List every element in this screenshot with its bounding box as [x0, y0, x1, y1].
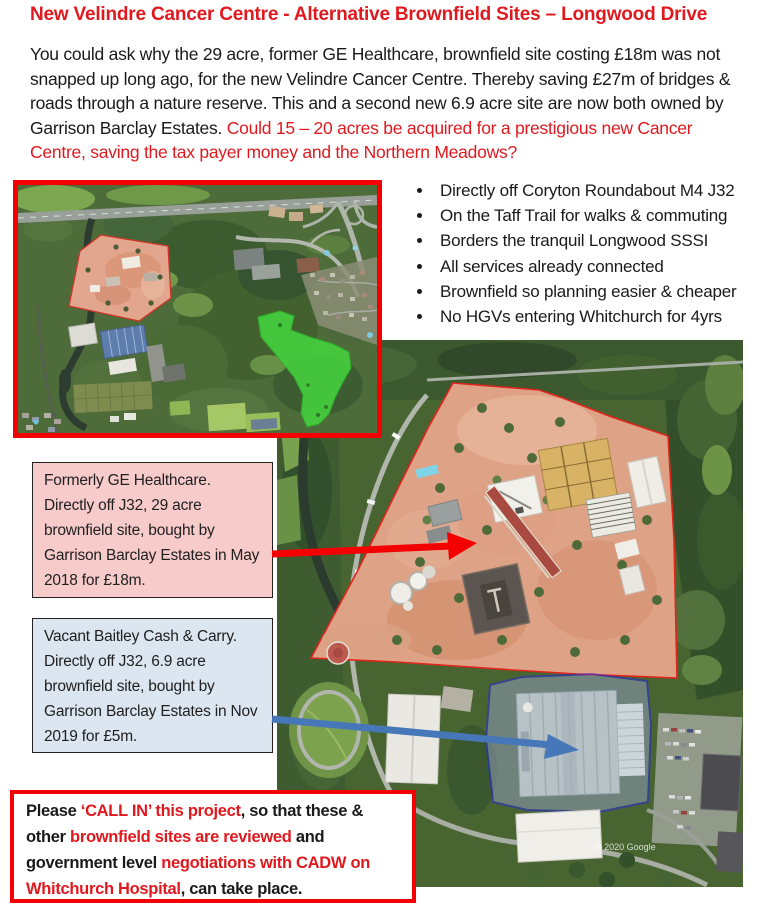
callout-baitley-text: Vacant Baitley Cash & Carry. Directly of…	[44, 628, 257, 745]
google-watermark: © 2020 Google	[595, 842, 656, 852]
overview-aerial-art	[18, 185, 377, 433]
list-item: No HGVs entering Whitchurch for 4yrs	[434, 304, 757, 329]
list-item: On the Taff Trail for walks & commuting	[434, 203, 757, 228]
call-in-box: Please ‘CALL IN’ this project, so that t…	[10, 790, 416, 903]
leaflet-page: New Velindre Cancer Centre - Alternative…	[0, 0, 757, 919]
list-item: All services already connected	[434, 254, 757, 279]
cta-segment: brownfield sites are reviewed	[70, 828, 291, 846]
callout-baitley-site: Vacant Baitley Cash & Carry. Directly of…	[32, 618, 273, 753]
cta-segment: , can take place.	[181, 880, 302, 898]
cta-segment: ‘CALL IN’ this project	[81, 802, 241, 820]
list-item: Borders the tranquil Longwood SSSI	[434, 228, 757, 253]
overview-aerial-photo	[13, 180, 382, 438]
baitley-site-outline	[486, 674, 651, 812]
page-title: New Velindre Cancer Centre - Alternative…	[30, 4, 740, 26]
benefits-list: Directly off Coryton Roundabout M4 J32 O…	[416, 178, 757, 329]
callout-ge-site: Formerly GE Healthcare. Directly off J32…	[32, 462, 273, 598]
call-in-text: Please ‘CALL IN’ this project, so that t…	[26, 798, 400, 902]
list-item: Directly off Coryton Roundabout M4 J32	[434, 178, 757, 203]
cta-segment: Please	[26, 802, 81, 820]
intro-paragraph: You could ask why the 29 acre, former GE…	[30, 42, 736, 165]
list-item: Brownfield so planning easier & cheaper	[434, 279, 757, 304]
callout-ge-text: Formerly GE Healthcare. Directly off J32…	[44, 472, 259, 589]
ge-site-highlight	[69, 235, 171, 321]
